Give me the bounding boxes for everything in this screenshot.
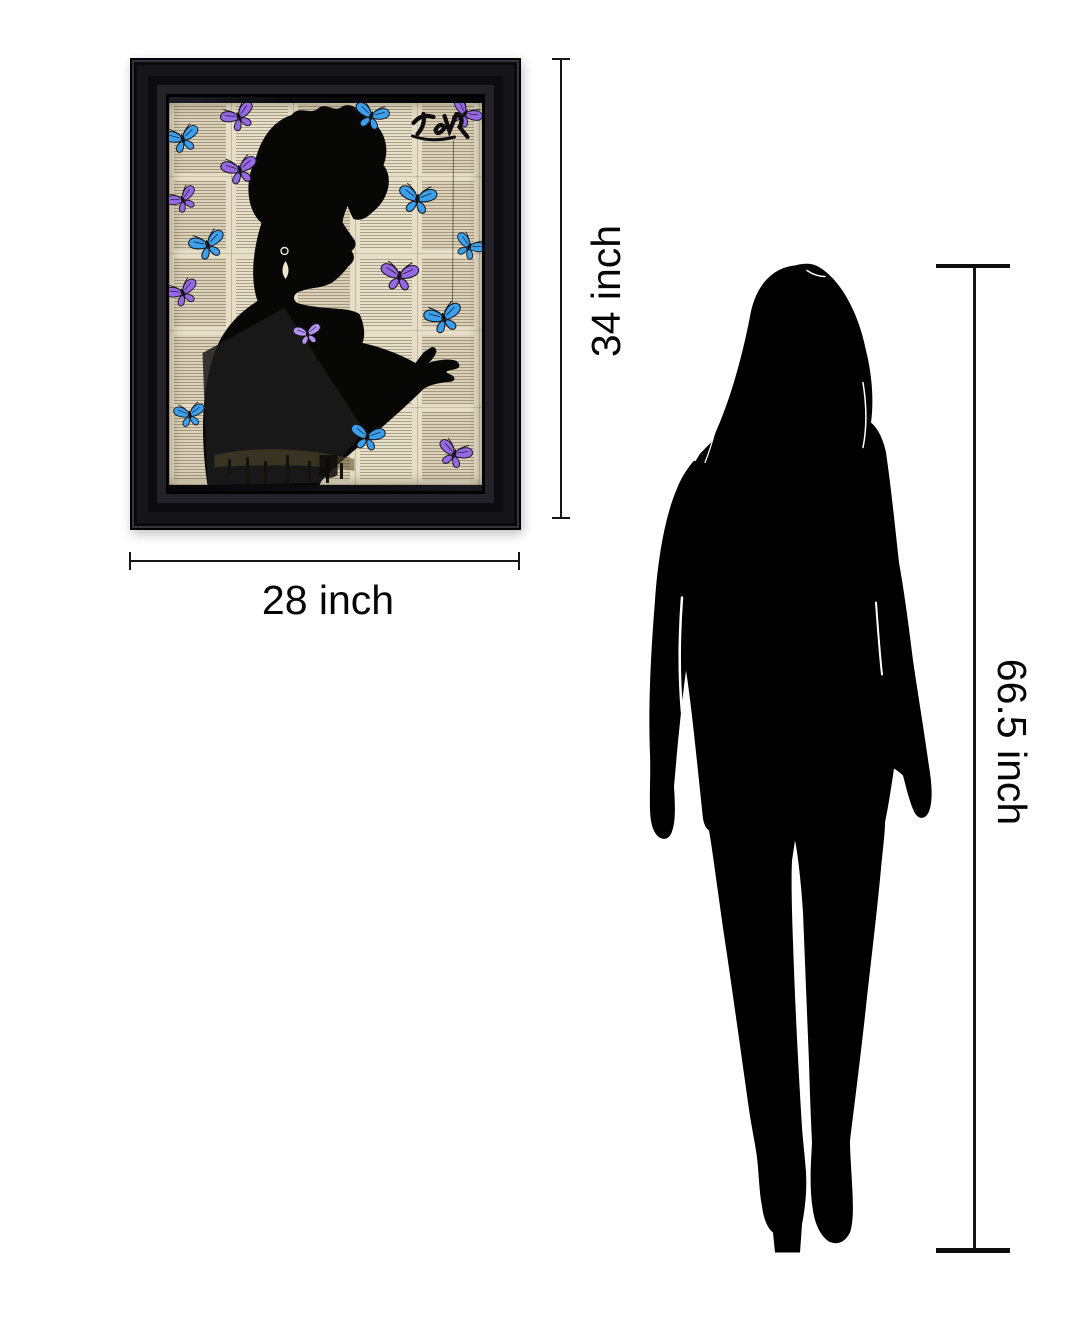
framed-artwork — [130, 58, 521, 530]
butterfly-icon — [173, 401, 207, 428]
butterfly-icon — [450, 229, 482, 263]
butterfly-icon — [380, 261, 419, 291]
size-comparison-diagram: 34 inch 28 inch 66.5 inch — [0, 0, 1080, 1317]
butterfly-icon — [218, 103, 260, 135]
person-height-label: 66.5 inch — [990, 632, 1034, 852]
butterfly-icon — [434, 436, 475, 471]
artwork-woman-silhouette — [203, 105, 460, 485]
butterfly-icon — [169, 275, 202, 309]
dimension-cap-right — [518, 552, 520, 570]
dimension-line-art-width — [130, 560, 520, 562]
butterfly-icon — [187, 226, 229, 262]
dimension-cap-person-top — [936, 264, 1010, 268]
artwork-canvas — [169, 103, 482, 485]
butterfly-icon — [397, 182, 438, 215]
dimension-line-art-height — [560, 59, 562, 519]
dimension-cap-person-bottom — [936, 1248, 1010, 1253]
butterfly-icon — [169, 182, 202, 216]
dimension-cap-left — [129, 552, 131, 570]
dimension-line-person-height — [973, 266, 976, 1252]
art-height-label: 34 inch — [584, 191, 628, 391]
dimension-cap-top — [552, 58, 570, 60]
butterfly-icon — [169, 122, 202, 155]
dimension-cap-bottom — [552, 517, 570, 519]
art-width-label: 28 inch — [220, 578, 436, 622]
human-silhouette — [645, 262, 940, 1258]
artwork-illustration — [169, 103, 482, 485]
butterfly-icon — [422, 299, 465, 335]
